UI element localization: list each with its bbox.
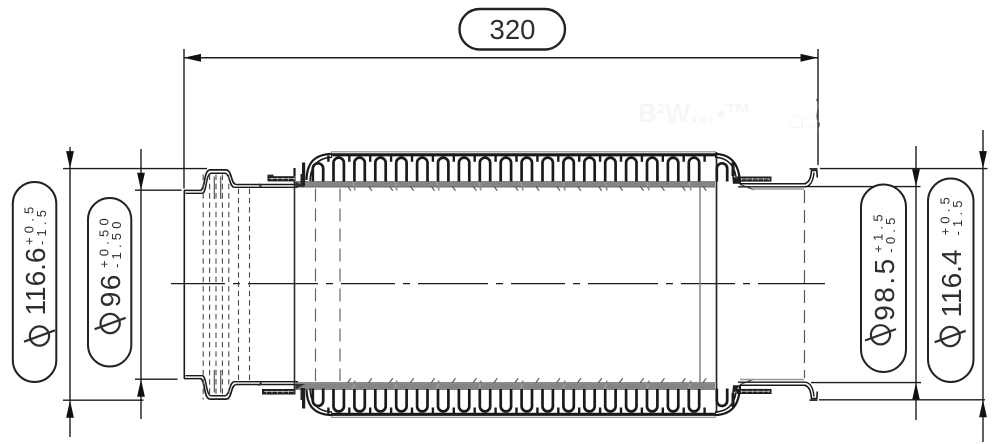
svg-text:-1.5: -1.5	[950, 196, 965, 235]
svg-text:96: 96	[95, 273, 126, 307]
svg-text:116.4: 116.4	[936, 250, 967, 318]
svg-text:B²W…▪™: B²W…▪™	[638, 98, 751, 128]
svg-text:-1.5: -1.5	[34, 206, 49, 245]
svg-text:-0.5: -0.5	[883, 213, 898, 252]
svg-text:320: 320	[490, 14, 536, 45]
svg-text:116.6: 116.6	[20, 248, 51, 316]
svg-text:98.5: 98.5	[869, 256, 900, 321]
svg-text:□□: □□	[790, 111, 814, 133]
svg-text:-1.50: -1.50	[109, 217, 124, 268]
